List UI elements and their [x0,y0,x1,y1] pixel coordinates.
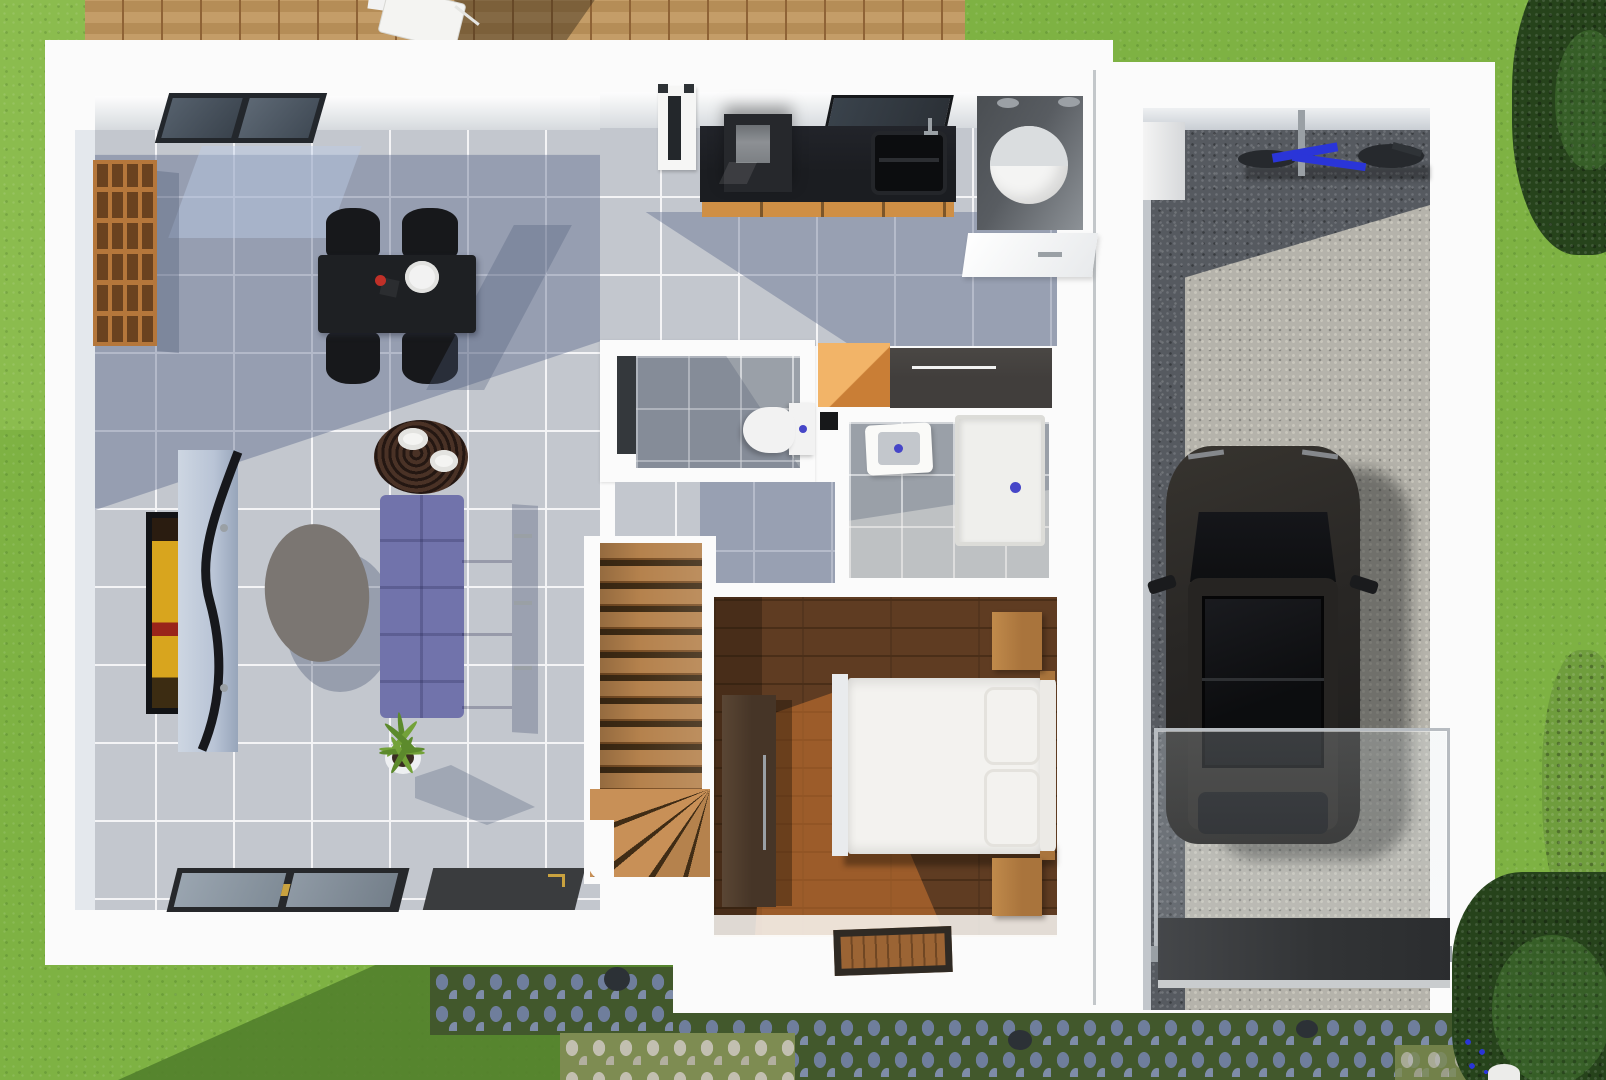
garage-threshold [1158,980,1450,988]
bicycle-mount-pole [1298,110,1305,176]
cobble-path-sunlit [560,1033,795,1080]
bookshelf-shadow [157,171,179,353]
sofa-foot-2 [514,601,532,605]
kitchen-sink [871,131,947,195]
cobble-patch [430,967,673,1035]
sofa-foot-3 [514,666,532,670]
white-planter [1488,1064,1520,1080]
entry-mat-corner-mark [548,874,565,887]
toilet-bowl [743,407,795,453]
tv-stand-curve [178,450,244,752]
garage-cabinet [1143,122,1185,200]
bedroom-wardrobe-shadow [776,700,792,906]
sideboard-handle [912,366,996,369]
sideboard [890,348,1052,408]
orange-cabinet-shade [818,343,890,407]
sofa-seat [380,495,464,718]
ceiling-window-pane-right [238,98,319,138]
side-table-cup-1 [398,428,428,450]
bookshelf [93,160,157,346]
kitchen-cabinets [702,202,954,217]
house-garage-seam [1093,70,1096,1005]
bed-pillow-2 [984,769,1040,847]
side-table-cup-2 [430,450,458,472]
garage-north-wall-face [1143,108,1430,130]
patio-door-pane-right [286,873,398,907]
sofa-foot-1 [514,534,532,538]
utility-cabinet-handle [1038,252,1062,257]
boiler-room-vent-1 [997,98,1019,108]
entry-door-cap-2 [684,84,694,93]
shower-tray [955,415,1045,546]
ceiling-window-pane-left [161,98,242,138]
tv-stand-curve-path [202,452,238,750]
bedroom-wardrobe-handle [763,755,766,850]
sofa-shadow [512,504,538,734]
bicycle-shadow [1245,166,1430,180]
stair-flight-shade [600,543,702,789]
hall-floor-shadow [700,482,835,583]
patio-door-pane-left [174,873,286,907]
sink-divider [879,158,939,162]
bedroom-wardrobe [722,695,776,907]
bed-pillow-1 [984,687,1040,765]
bed-headboard [1040,676,1056,854]
drain-cover-3 [1296,1020,1318,1038]
tv-stand-hinge-bottom [220,684,228,692]
utility-cabinet [962,233,1098,277]
drain-cover-2 [1008,1030,1032,1050]
living-west-wall-face [75,130,95,910]
sofa-back [462,490,512,722]
floor-plan-scene [0,0,1606,1080]
bed-post-top [1040,671,1055,680]
coffee-machine [736,125,770,163]
garage-west-wall-face [1143,128,1151,1010]
nightstand-bottom [992,858,1042,916]
dinner-plate [405,261,439,293]
wc-door-gap [617,356,636,454]
car-sunroof-divider [1202,678,1324,681]
car-windshield [1190,512,1336,582]
bedroom-doormat [833,926,953,976]
dining-chair-3 [326,332,380,384]
shower-drain [1010,482,1021,493]
washbasin-drain [894,444,903,453]
entry-door-slot [668,96,681,160]
boiler-room-vent-2 [1058,97,1080,107]
bed-post-bottom [1040,851,1055,860]
entry-door-cap-1 [658,84,668,93]
garage-door-mat [1158,918,1450,982]
dining-chair-2 [402,208,458,258]
sink-faucet-arm [924,131,938,135]
bed-footboard [832,674,848,856]
ceiling-window [155,93,327,143]
drain-cover-1 [604,967,630,991]
nightstand-top [992,612,1042,670]
dining-table [318,255,476,333]
bathroom-door-gap [820,412,838,430]
bush-bottom-right-inner [1492,935,1606,1080]
patio-door [167,868,410,912]
dining-chair-1 [326,208,380,258]
vase-flower [375,275,386,286]
toilet-flush-button [799,425,807,433]
tv-stand-hinge-top [220,524,228,532]
